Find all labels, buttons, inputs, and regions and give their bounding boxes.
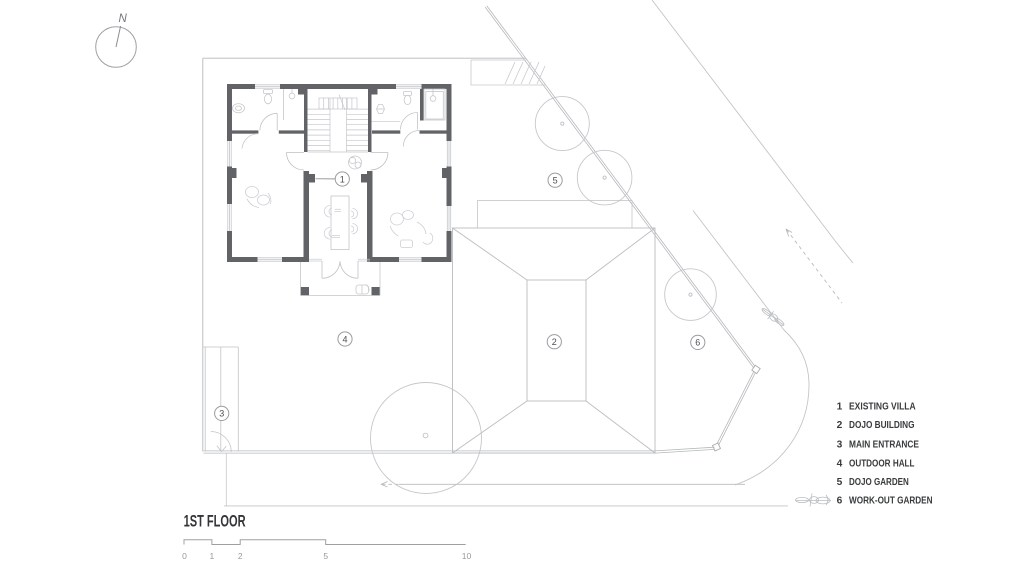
svg-text:MAIN ENTRANCE: MAIN ENTRANCE bbox=[849, 439, 919, 450]
svg-text:2: 2 bbox=[837, 420, 843, 431]
svg-text:EXISTING VILLA: EXISTING VILLA bbox=[849, 401, 916, 412]
svg-text:N: N bbox=[119, 13, 128, 25]
svg-text:DOJO GARDEN: DOJO GARDEN bbox=[849, 477, 909, 488]
svg-text:3: 3 bbox=[219, 409, 224, 419]
svg-text:2: 2 bbox=[552, 337, 557, 347]
svg-text:1ST FLOOR: 1ST FLOOR bbox=[184, 512, 246, 531]
svg-text:6: 6 bbox=[837, 496, 843, 507]
svg-text:6: 6 bbox=[695, 338, 700, 348]
svg-text:1: 1 bbox=[340, 174, 345, 184]
svg-text:1: 1 bbox=[210, 551, 215, 561]
svg-text:4: 4 bbox=[837, 458, 843, 469]
svg-text:5: 5 bbox=[553, 176, 558, 186]
svg-text:3: 3 bbox=[837, 439, 843, 450]
svg-text:5: 5 bbox=[323, 551, 328, 561]
svg-text:WORK-OUT GARDEN: WORK-OUT GARDEN bbox=[849, 496, 933, 507]
svg-text:OUTDOOR HALL: OUTDOOR HALL bbox=[849, 458, 915, 469]
svg-text:1: 1 bbox=[837, 401, 843, 412]
svg-text:DOJO BUILDING: DOJO BUILDING bbox=[849, 420, 915, 431]
svg-text:2: 2 bbox=[238, 551, 243, 561]
svg-text:5: 5 bbox=[837, 477, 843, 488]
svg-text:10: 10 bbox=[462, 551, 472, 561]
svg-text:0: 0 bbox=[182, 551, 187, 561]
svg-text:4: 4 bbox=[342, 334, 347, 344]
